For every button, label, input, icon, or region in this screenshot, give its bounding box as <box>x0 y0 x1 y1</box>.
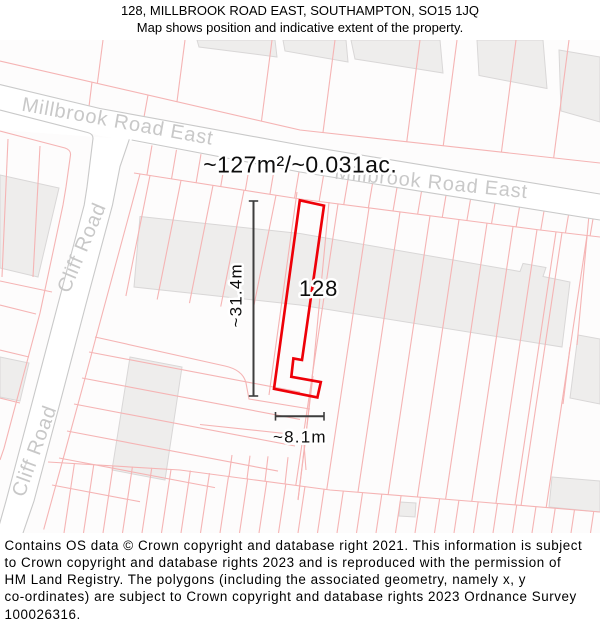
svg-text:~8.1m: ~8.1m <box>273 428 327 447</box>
svg-text:~127m²/~0.031ac.: ~127m²/~0.031ac. <box>203 152 397 178</box>
svg-text:128: 128 <box>299 276 338 301</box>
svg-text:~31.4m: ~31.4m <box>227 263 246 327</box>
